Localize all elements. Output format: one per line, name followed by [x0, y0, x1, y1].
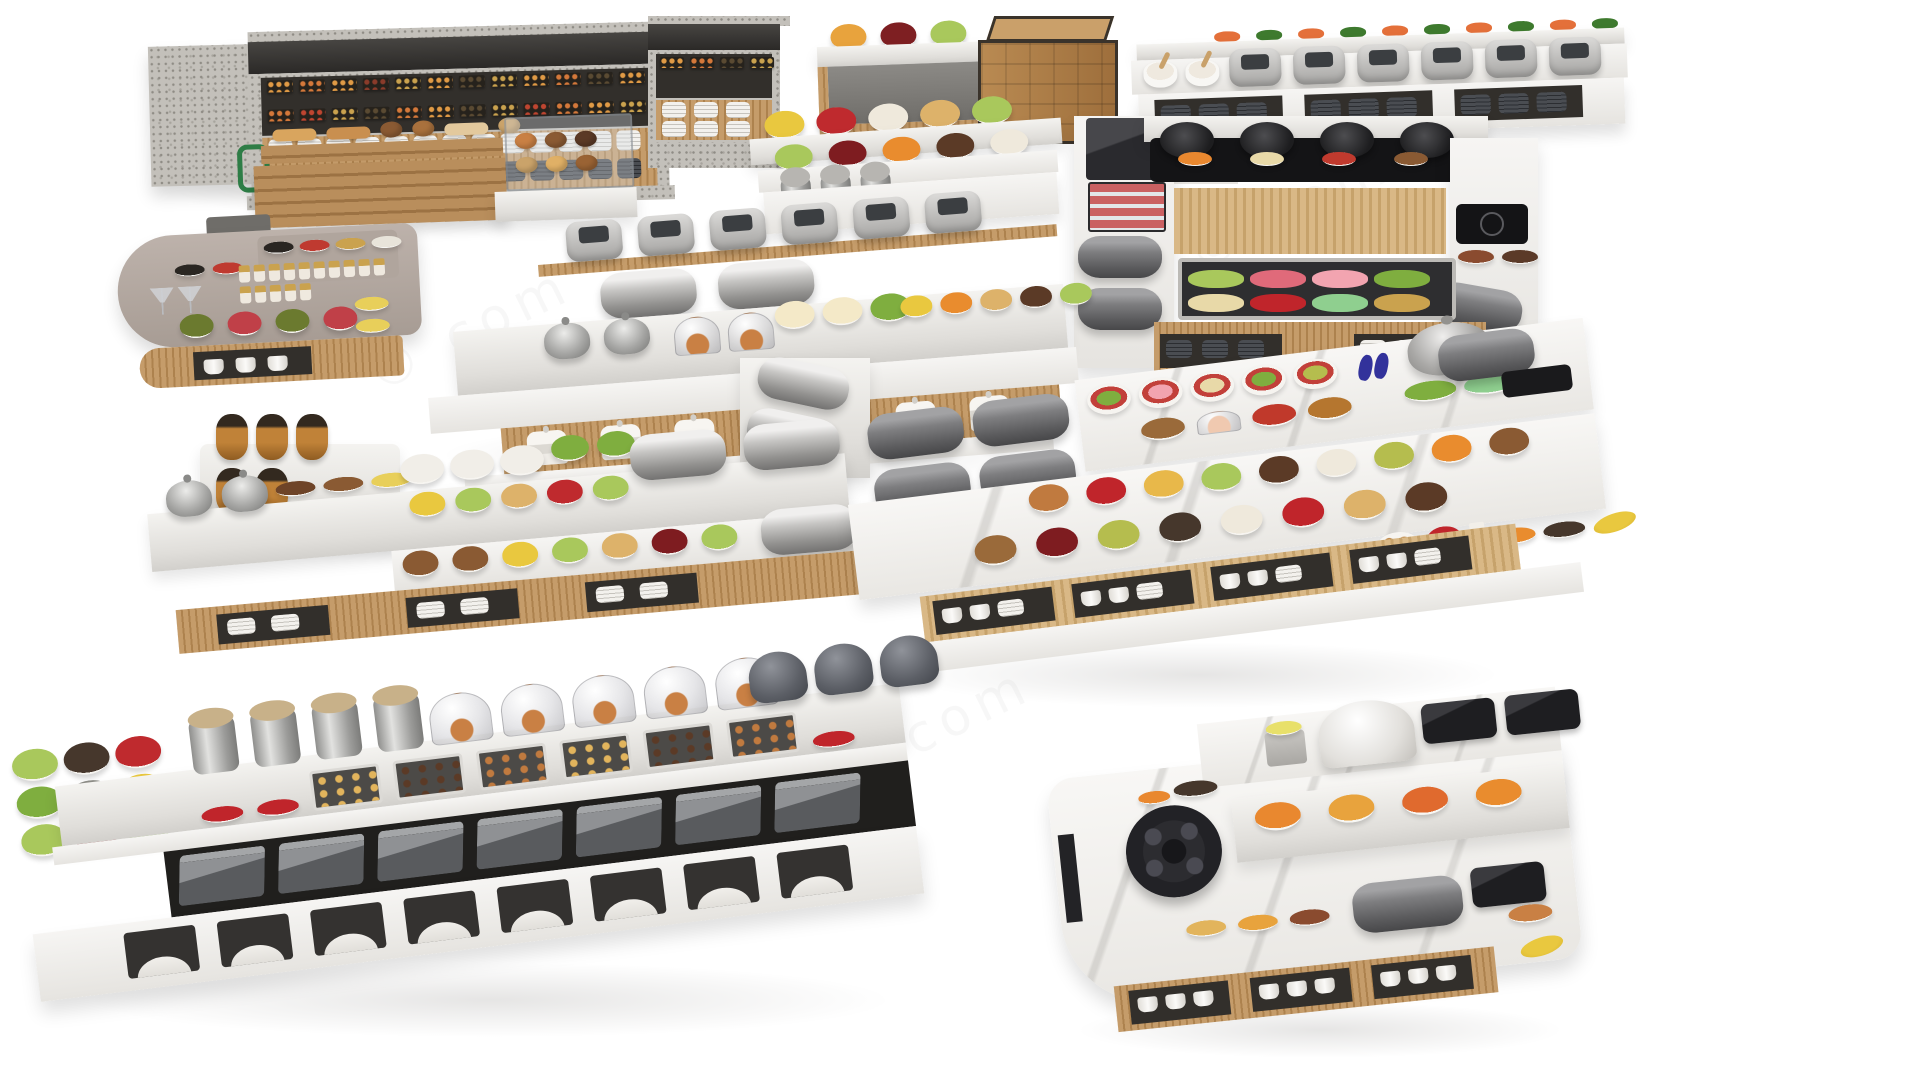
- dome-item: [498, 680, 566, 737]
- can-item: [372, 692, 424, 753]
- garnish-item: [1312, 270, 1368, 288]
- cup-item: [1193, 990, 1214, 1007]
- plate-item: [323, 475, 364, 493]
- sushi-item: [587, 72, 613, 85]
- tray-item: [642, 722, 716, 770]
- cup-item: [1386, 552, 1408, 569]
- roll-top-chafer: [759, 502, 859, 556]
- plate-item: [1401, 784, 1450, 817]
- mortar-item: [1143, 61, 1178, 88]
- dome-item: [570, 672, 638, 729]
- pastry-dome-row: [673, 311, 776, 357]
- shot-item: [328, 260, 340, 278]
- sushi-item: [331, 78, 357, 91]
- chbx-item: [1229, 48, 1282, 88]
- island-inner-counter: [1174, 188, 1446, 254]
- chbx-item: [708, 207, 767, 251]
- dark-top: [648, 24, 780, 50]
- sushiplate-item: [1240, 363, 1287, 398]
- cup-item: [1408, 967, 1429, 984]
- clh-item: [746, 648, 810, 705]
- sushi-item: [555, 73, 581, 86]
- cup-item: [1314, 977, 1335, 994]
- bun-item: [545, 131, 568, 148]
- fridge-tray-grid: [1188, 270, 1448, 312]
- bowl-item: [399, 452, 445, 486]
- stkw-item: [595, 585, 624, 603]
- garnish-item: [1312, 294, 1368, 312]
- dome-item: [726, 311, 775, 352]
- cup-item: [1080, 590, 1102, 607]
- bowl-item: [1281, 495, 1326, 530]
- mortar-item: [1185, 60, 1220, 87]
- plate-item: [1458, 250, 1494, 264]
- stkw-item: [460, 597, 489, 615]
- can-item: [311, 699, 363, 760]
- chbx-item: [637, 213, 696, 257]
- chrl-item: [754, 353, 853, 413]
- bowl-item: [10, 746, 60, 783]
- stkw-item: [639, 581, 668, 599]
- mortar-row: [1143, 60, 1220, 89]
- garnish-item: [1188, 294, 1244, 312]
- sushi-item: [268, 109, 294, 122]
- bowl-item: [900, 294, 934, 318]
- glove-item: [1357, 354, 1375, 382]
- plate-item: [275, 479, 316, 497]
- stkw-item: [1136, 581, 1164, 600]
- plate-item: [1327, 792, 1376, 825]
- plate-item: [356, 318, 391, 334]
- stkw-item: [694, 121, 718, 137]
- dome-item: [641, 663, 709, 720]
- sushi-item: [750, 57, 774, 68]
- bowl-item: [1488, 425, 1531, 458]
- plate-item: [1322, 152, 1356, 166]
- refrigerated-display: [1178, 258, 1456, 320]
- chbx-item: [1420, 41, 1473, 81]
- shot-item: [239, 265, 251, 283]
- bowl-item: [973, 533, 1018, 568]
- bowl-item: [551, 536, 589, 565]
- bowl-item: [113, 733, 163, 770]
- white-bowl-row: [399, 443, 545, 485]
- shot-item: [298, 262, 310, 280]
- bun-item: [574, 130, 597, 147]
- bun-item: [412, 120, 435, 137]
- stkw-item: [1414, 547, 1442, 566]
- bread-item: [444, 122, 488, 136]
- plate-item: [263, 241, 294, 255]
- cube-top: [986, 16, 1114, 42]
- green-bowl-row: [550, 429, 636, 462]
- chrl-item: [742, 418, 842, 472]
- sushi-item: [427, 76, 453, 89]
- sushi-item: [523, 73, 549, 86]
- stkw-item: [1275, 564, 1303, 583]
- plate-item: [174, 264, 205, 278]
- chrl-item: [865, 404, 966, 461]
- buffet-render-canvas: { "image": { "kind": "3d-render", "subje…: [0, 0, 1920, 1080]
- clh-item: [877, 632, 941, 689]
- bowl-item: [499, 443, 545, 477]
- bowl-item: [401, 549, 439, 578]
- trayk-item: [1504, 688, 1582, 736]
- cup-item: [1435, 965, 1456, 982]
- stkw-item: [416, 601, 445, 619]
- garnish-item: [1250, 294, 1306, 312]
- bun-item: [515, 156, 538, 173]
- bowl-item: [550, 433, 590, 462]
- bowl-item: [1034, 525, 1079, 560]
- tray-item: [309, 763, 383, 811]
- station-breakfast-island: [1018, 687, 1589, 1064]
- stkw-item: [694, 102, 718, 118]
- station-l-counter: [152, 358, 872, 660]
- bowl-item: [449, 448, 495, 482]
- plate-item: [371, 235, 402, 249]
- pot-item: [603, 316, 652, 355]
- bun-item: [545, 155, 568, 172]
- bowl-item: [651, 527, 689, 556]
- shot-item: [358, 259, 370, 277]
- cup-item: [1108, 586, 1130, 603]
- stkd-item: [1166, 340, 1192, 358]
- bowl-item: [500, 482, 538, 510]
- bowl-item: [451, 545, 489, 574]
- plate-item: [1178, 152, 1212, 166]
- bun-item: [515, 133, 538, 150]
- cup-item: [1165, 993, 1186, 1010]
- garnish-item: [1188, 270, 1244, 288]
- case-base: [495, 187, 638, 222]
- arch-item: [590, 867, 667, 921]
- bowl-item: [454, 486, 492, 514]
- bun-item: [380, 121, 403, 138]
- bowl-item: [1142, 468, 1185, 501]
- cup-item: [1380, 970, 1401, 987]
- bread-item: [272, 128, 316, 142]
- plate-item: [1254, 800, 1303, 833]
- plate-item: [1250, 152, 1284, 166]
- cup-item: [969, 603, 991, 620]
- bowl-item: [408, 490, 446, 518]
- pastry-glass-case: [504, 113, 635, 191]
- garnish-item: [1374, 294, 1430, 312]
- bowl-item: [1027, 482, 1070, 515]
- bin-item: [179, 845, 265, 906]
- sushiplate-item: [1189, 369, 1236, 404]
- plate-item: [1542, 519, 1586, 540]
- shot-item: [254, 264, 266, 282]
- shot-item: [270, 285, 282, 303]
- bowl-item: [1257, 454, 1300, 487]
- bowl-item: [546, 478, 584, 506]
- mart-item: [178, 286, 203, 314]
- stkd-item: [1238, 340, 1264, 358]
- bowl-item: [1019, 285, 1053, 309]
- wok-plate-row: [1178, 152, 1428, 166]
- chbx-item: [1293, 45, 1346, 85]
- bowl-item: [1404, 480, 1449, 515]
- chrl-item: [628, 428, 728, 482]
- bowl-item: [1342, 487, 1387, 522]
- cup-item: [1286, 980, 1307, 997]
- pot-item: [220, 474, 269, 514]
- tray-row: [660, 57, 774, 68]
- cup-item: [1137, 996, 1158, 1013]
- induction-ring: [1480, 212, 1504, 236]
- plate-item: [1502, 250, 1538, 264]
- black-tray: [1469, 861, 1547, 909]
- shot-item: [255, 285, 267, 303]
- sushiplate-item: [1292, 356, 1339, 391]
- shot-item: [373, 258, 385, 276]
- arch-item: [496, 879, 573, 933]
- cup-item: [1258, 983, 1279, 1000]
- sushiplate-item: [1085, 382, 1132, 417]
- bowl-item: [774, 299, 816, 330]
- plate-item: [299, 239, 330, 253]
- sushi-item: [395, 77, 421, 90]
- garnish-item: [1250, 270, 1306, 288]
- sushi-item: [690, 57, 714, 68]
- arch-item: [776, 844, 853, 898]
- cup-item: [941, 607, 963, 624]
- tray-item: [559, 732, 633, 780]
- chbx-item: [852, 196, 911, 240]
- plate-item: [335, 237, 366, 251]
- jar-item: [216, 414, 248, 460]
- sushi-item: [720, 57, 744, 68]
- bin-item: [576, 797, 662, 858]
- bowl-item: [822, 296, 864, 327]
- sushi-item: [363, 78, 389, 91]
- bowl-item: [227, 311, 262, 337]
- egg-plate-grid: [354, 294, 420, 333]
- cup-item: [1247, 569, 1269, 586]
- bowl-item: [1158, 510, 1203, 545]
- bun-item: [575, 154, 598, 171]
- bowl-item: [179, 313, 214, 339]
- bowl-item: [62, 740, 112, 777]
- bin-item: [278, 833, 364, 894]
- bowl-item: [700, 523, 738, 552]
- martini-glass-row: [150, 286, 203, 316]
- bowl-item: [601, 532, 639, 561]
- jar-item: [296, 414, 328, 460]
- bowl-item: [1096, 518, 1141, 553]
- bowl-item: [501, 540, 539, 569]
- bin-item: [774, 772, 860, 833]
- chrl-item: [970, 391, 1071, 448]
- sushi-item: [299, 79, 325, 92]
- dessert-plate-row: [1458, 250, 1538, 264]
- bin-item: [675, 784, 761, 845]
- chbx-item: [1548, 36, 1601, 76]
- glove-pair: [1358, 352, 1390, 381]
- chrl-item: [599, 267, 698, 320]
- bowl-item: [592, 474, 630, 502]
- tray-item: [392, 753, 466, 801]
- bread-item: [326, 126, 370, 140]
- stkd-item: [1536, 92, 1567, 113]
- plate-row: [662, 121, 750, 137]
- jar-item: [256, 414, 288, 460]
- stkw-item: [271, 613, 300, 631]
- plate-item: [1394, 152, 1428, 166]
- garnish-item: [1374, 270, 1430, 288]
- mart-item: [150, 287, 175, 315]
- shot-item: [313, 261, 325, 279]
- bowl-item: [1200, 461, 1243, 494]
- stkw-item: [997, 598, 1025, 617]
- bowl-item: [275, 308, 310, 334]
- shot-item: [283, 263, 295, 281]
- sushiplate-item: [1137, 375, 1184, 410]
- bowl-item: [1430, 433, 1473, 466]
- plate-row: [662, 102, 750, 118]
- case-pastry-grid: [515, 129, 626, 173]
- stkw-item: [227, 617, 256, 635]
- can-item: [188, 714, 240, 775]
- ban-item: [1591, 507, 1638, 538]
- shot-item: [240, 286, 252, 304]
- meat-display-case: [1088, 182, 1166, 232]
- sushi-item: [619, 71, 645, 84]
- bowl-item: [1372, 440, 1415, 473]
- tray-item: [726, 712, 800, 760]
- dark-stack-row: [1166, 340, 1264, 358]
- trayk-item: [1420, 697, 1498, 745]
- cup-item: [1219, 573, 1241, 590]
- stkw-item: [662, 121, 686, 137]
- clh-item: [811, 640, 875, 697]
- can-item: [249, 707, 301, 768]
- chrl-item: [1078, 236, 1162, 278]
- stkw-item: [662, 102, 686, 118]
- shot-item: [285, 284, 297, 302]
- arch-item: [216, 913, 293, 967]
- stkw-item: [726, 121, 750, 137]
- bowl-item: [939, 291, 973, 315]
- bowl-item: [1059, 282, 1093, 306]
- stkw-item: [726, 102, 750, 118]
- arch-item: [123, 925, 200, 979]
- plate-item: [354, 296, 389, 312]
- chbx-item: [924, 190, 983, 234]
- arch-item: [683, 856, 760, 910]
- sushi-item: [491, 74, 517, 87]
- chbx-item: [1357, 43, 1410, 83]
- glove-item: [1373, 352, 1391, 380]
- sushi-item: [267, 80, 293, 93]
- dome-item: [673, 315, 722, 356]
- arch-item: [403, 890, 480, 944]
- arch-item: [310, 902, 387, 956]
- bin-item: [377, 821, 463, 882]
- chbx-item: [1484, 39, 1537, 79]
- stkd-item: [1202, 340, 1228, 358]
- shot-item: [268, 264, 280, 282]
- shot-item: [343, 260, 355, 278]
- chbx-item: [780, 201, 839, 245]
- bowl-item: [1085, 475, 1128, 508]
- bowl-item: [323, 306, 358, 332]
- tray-item: [476, 743, 550, 791]
- bin-item: [477, 809, 563, 870]
- bowl-item: [979, 288, 1013, 312]
- dome-item: [427, 689, 495, 746]
- sushi-item: [459, 75, 485, 88]
- plate-item: [1474, 777, 1523, 810]
- cup-item: [1358, 556, 1380, 573]
- shot-item: [300, 283, 312, 301]
- pot-item: [543, 321, 592, 360]
- chbx-item: [565, 218, 624, 262]
- bowl-item: [1315, 447, 1358, 480]
- sushi-item: [660, 57, 684, 68]
- bowl-item: [1219, 503, 1264, 538]
- pot-item: [165, 479, 214, 519]
